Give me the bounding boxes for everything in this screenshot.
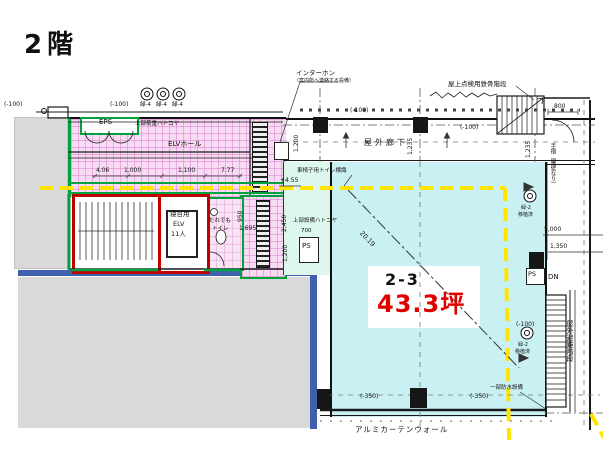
accessible-toilet-label: だれでも: [209, 219, 231, 225]
level-note: (-100): [110, 102, 128, 108]
plant-tag-note: 移植済: [518, 213, 533, 218]
mass-blue-edge-right: [310, 270, 317, 429]
dim: 1,350: [550, 244, 567, 250]
intercom-box: [274, 142, 289, 160]
stair-room: [72, 194, 164, 274]
eps-label: EPS: [99, 119, 112, 126]
dim: 1,200: [283, 245, 289, 262]
elv-hall-label: ELVホール: [168, 141, 201, 148]
dim: 1,695: [239, 226, 256, 232]
plant-tag-note: 移植済: [515, 350, 530, 355]
intercom-note: （案内所へ連絡する設備）: [294, 79, 354, 84]
dim: 5,000: [544, 227, 561, 233]
roof-stair-note: 屋上点検用鉄骨階段: [448, 81, 507, 88]
unit-code: 2-3: [385, 272, 420, 288]
level-note: (-100): [516, 322, 534, 328]
dim: 700: [301, 229, 312, 235]
dim: 2,450: [282, 215, 288, 232]
wheelchair-sign-note: 車椅子用トイレ標識: [297, 169, 347, 175]
level-note: (-100): [4, 102, 22, 108]
handrail-note: 手摺（腰壁なり）: [549, 143, 555, 187]
adjacent-mass-bottom: [18, 277, 310, 428]
shaft-hatch-upper: [252, 122, 268, 194]
plant-tag: 緑-2: [521, 206, 531, 211]
dim: 7.77: [221, 168, 234, 174]
level-note: (-350): [360, 394, 378, 400]
dim: 1,200: [294, 135, 300, 152]
shaft-hatch-lower: [256, 200, 270, 268]
plant-tag: 緑-2: [518, 343, 528, 348]
upper-load-hatch-label: 上部荷重ハトコヤ: [135, 122, 179, 128]
waterproof-note: 一部防水設備: [490, 386, 523, 392]
curtain-wall-label: アルミカーテンウォール: [355, 426, 448, 434]
stretcher-elv-label: ELV: [173, 221, 184, 228]
intercom-note: インターホン: [296, 70, 335, 77]
dim: 4.06: [96, 168, 109, 174]
upper-equip-hatch-label: 上部設備ハトコヤ: [293, 219, 337, 225]
ps-label: PS: [528, 271, 536, 278]
escape-stair-label: 屋外避難階段: [566, 320, 573, 362]
plant-tag: 緑-4: [172, 103, 183, 109]
level-note: (-100): [460, 125, 478, 131]
level-mark: +4.55: [280, 178, 298, 184]
dim: 950: [238, 211, 244, 222]
plant-tag: 緑-4: [140, 103, 151, 109]
page-title: 2階: [24, 32, 78, 58]
level-note: (-100): [350, 108, 368, 114]
unit-area: 43.3坪: [377, 292, 465, 316]
plant-tag: 緑-4: [156, 103, 167, 109]
adjacent-mass-left: [14, 117, 68, 269]
outdoor-corridor-label: 屋外廊下: [364, 139, 408, 147]
floor-plan-2f: 2階 (-100) (-100) (-100) (-100) (-100) (-…: [0, 0, 603, 455]
dim: 1,235: [526, 141, 532, 158]
level-note: (-350): [470, 394, 488, 400]
stretcher-elv-label: 11人: [171, 231, 186, 238]
dim: 1,235: [408, 138, 414, 155]
stretcher-elv-label: 寝台用: [170, 211, 190, 218]
dim: 1,100: [178, 168, 195, 174]
ps-box-main: [299, 237, 319, 263]
ps-label: PS: [302, 243, 311, 250]
accessible-toilet-room: [206, 197, 244, 271]
accessible-toilet-label: トイレ: [212, 227, 229, 233]
dim: 1,000: [124, 168, 141, 174]
dn-label: DN: [548, 274, 559, 281]
dim: 800: [554, 104, 565, 110]
